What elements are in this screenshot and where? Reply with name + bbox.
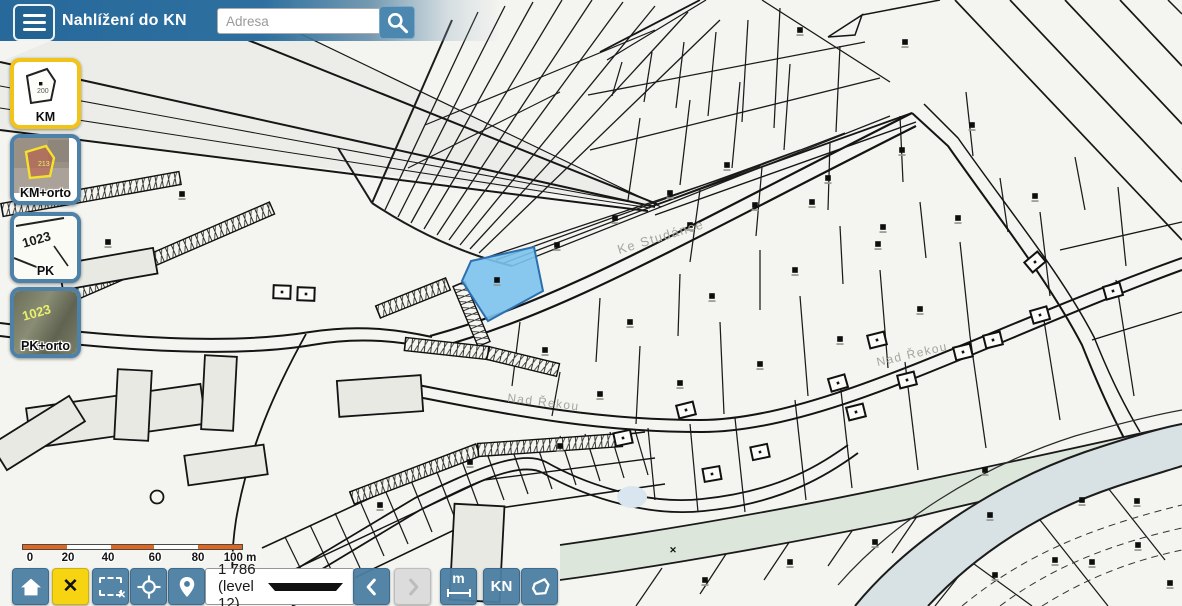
- app-title: Nahlížení do KN: [62, 0, 187, 41]
- building: [114, 369, 152, 441]
- building-marker: [377, 502, 384, 511]
- kn-info-button[interactable]: KN: [483, 568, 520, 605]
- building-marker: [105, 239, 112, 248]
- crosshair-icon: [135, 573, 163, 601]
- pond: [617, 486, 647, 508]
- building-marker: [179, 191, 186, 200]
- building-marker: [752, 202, 759, 211]
- polygon-icon: [527, 574, 553, 600]
- building-marker: [792, 267, 799, 276]
- house: [297, 287, 314, 301]
- building-marker: [902, 39, 909, 48]
- menu-button[interactable]: [13, 4, 55, 41]
- layer-button-km[interactable]: 200 KM: [10, 58, 81, 129]
- house: [703, 466, 722, 482]
- building-marker: [557, 443, 564, 452]
- building-marker: [969, 122, 976, 131]
- house: [273, 285, 290, 299]
- house: [983, 332, 1003, 349]
- chevron-down-icon: [268, 583, 344, 591]
- add-point-button[interactable]: [168, 568, 205, 605]
- building-marker: [667, 190, 674, 199]
- scale-label: 20: [62, 552, 75, 564]
- layer-label-km-orto: KM+orto: [14, 187, 77, 200]
- header-bar: Nahlížení do KN: [0, 0, 500, 41]
- zoom-level-value: 1 786 (level 12): [206, 561, 268, 606]
- house: [897, 372, 917, 389]
- chevron-left-icon: [359, 574, 385, 600]
- house: [846, 404, 866, 421]
- map-pin-icon: [174, 574, 200, 600]
- building-marker: [1167, 580, 1174, 589]
- home-icon: [18, 574, 44, 600]
- building-marker: [597, 391, 604, 400]
- measure-icon: m: [446, 571, 472, 603]
- building-marker: [1135, 542, 1142, 551]
- scale-label: 80: [192, 552, 205, 564]
- building-marker: [494, 277, 501, 286]
- building-marker: [992, 572, 999, 581]
- scale-bar: [22, 544, 243, 550]
- clear-selection-icon: ✕: [99, 577, 122, 596]
- building: [337, 375, 423, 417]
- stream-marker: ✕: [669, 545, 677, 555]
- magnifier-icon: [384, 10, 410, 36]
- address-search-input[interactable]: [217, 8, 385, 34]
- building-marker: [797, 27, 804, 36]
- back-button[interactable]: [353, 568, 390, 605]
- layer-button-pk[interactable]: 1023 PK: [10, 212, 81, 283]
- layer-button-pk-orto[interactable]: 1023 PK+orto: [10, 287, 81, 358]
- kn-label: KN: [491, 579, 513, 594]
- locate-button[interactable]: [130, 568, 167, 605]
- building: [201, 355, 237, 431]
- building-marker: [612, 215, 619, 224]
- building-marker: [677, 380, 684, 389]
- building-marker: [1052, 557, 1059, 566]
- polygon-select-button[interactable]: [521, 568, 558, 605]
- building-marker: [809, 199, 816, 208]
- app-window: ✕ Ke StudánceNad ŘekouNad Řekou Nahlížen…: [0, 0, 1182, 606]
- cancel-button[interactable]: ✕: [52, 568, 89, 605]
- map-canvas[interactable]: ✕ Ke StudánceNad ŘekouNad Řekou: [0, 0, 1182, 606]
- hamburger-icon: [23, 14, 46, 17]
- zoom-level-select[interactable]: 1 786 (level 12): [205, 568, 355, 605]
- building-marker: [899, 147, 906, 156]
- building-marker: [702, 577, 709, 586]
- building-marker: [1134, 498, 1141, 507]
- home-button[interactable]: [12, 568, 49, 605]
- scale-label: 60: [149, 552, 162, 564]
- house: [953, 344, 973, 361]
- building-marker: [724, 162, 731, 171]
- house: [867, 332, 887, 349]
- chevron-right-icon: [400, 574, 426, 600]
- building-marker: [627, 319, 634, 328]
- building-marker: [787, 559, 794, 568]
- building-marker: [554, 242, 561, 251]
- building-marker: [880, 224, 887, 233]
- forward-button[interactable]: [394, 568, 431, 605]
- building-marker: [955, 215, 962, 224]
- building-marker: [467, 459, 474, 468]
- building-marker: [825, 175, 832, 184]
- scale-label: 40: [102, 552, 115, 564]
- measure-button[interactable]: m: [440, 568, 477, 605]
- close-icon: ✕: [63, 577, 79, 596]
- building-marker: [542, 347, 549, 356]
- building-marker: [837, 336, 844, 345]
- search-button[interactable]: [379, 6, 415, 39]
- building-marker: [1079, 497, 1086, 506]
- layer-label-pk: PK: [14, 265, 77, 278]
- clear-selection-button[interactable]: ✕: [92, 568, 129, 605]
- building-marker: [757, 361, 764, 370]
- building-marker: [917, 306, 924, 315]
- building-marker: [872, 539, 879, 548]
- layer-button-km-orto[interactable]: 213 KM+orto: [10, 134, 81, 205]
- house: [613, 430, 632, 446]
- building-marker: [1032, 193, 1039, 202]
- scale-label: 0: [27, 552, 33, 564]
- building-marker: [875, 241, 882, 250]
- building-marker: [709, 293, 716, 302]
- building-marker: [982, 467, 989, 476]
- house: [750, 444, 769, 460]
- house: [676, 402, 696, 419]
- layer-label-pk-orto: PK+orto: [14, 340, 77, 353]
- building-marker: [1089, 559, 1096, 568]
- building-marker: [987, 512, 994, 521]
- layer-label-km: KM: [14, 111, 77, 124]
